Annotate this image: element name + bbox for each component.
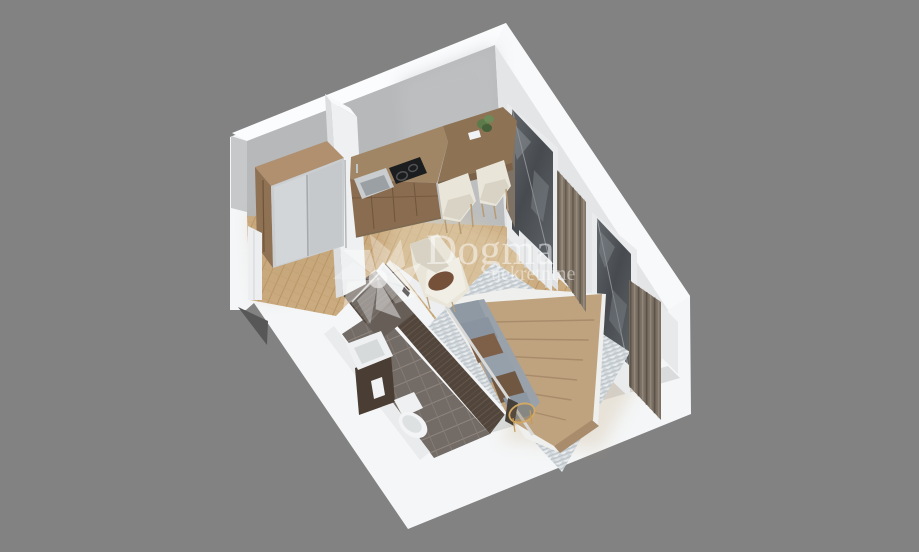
svg-text:nekretnine: nekretnine — [491, 263, 576, 285]
